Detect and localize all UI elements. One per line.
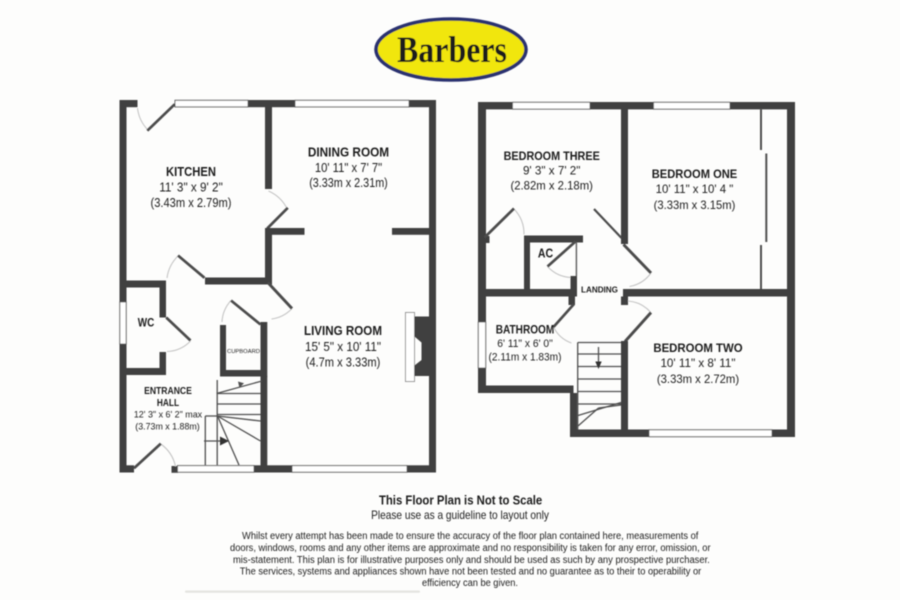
svg-text:doors, windows, rooms and any: doors, windows, rooms and any other item… <box>230 543 711 554</box>
svg-text:KITCHEN: KITCHEN <box>166 165 216 179</box>
svg-text:(3.33m x 3.15m): (3.33m x 3.15m) <box>654 198 736 212</box>
svg-text:(3.73m x 1.88m): (3.73m x 1.88m) <box>135 422 199 432</box>
svg-text:Please use as a guideline to l: Please use as a guideline to layout only <box>371 508 549 522</box>
svg-text:11' 3" x 9' 2": 11' 3" x 9' 2" <box>159 181 223 195</box>
svg-text:The services, systems and appl: The services, systems and appliances sho… <box>240 567 702 578</box>
svg-text:BEDROOM TWO: BEDROOM TWO <box>653 341 743 355</box>
svg-text:Barbers: Barbers <box>397 30 507 71</box>
svg-text:12' 3" x 6' 2" max: 12' 3" x 6' 2" max <box>134 410 203 420</box>
svg-text:DINING ROOM: DINING ROOM <box>308 146 389 160</box>
svg-text:ENTRANCE: ENTRANCE <box>144 386 192 397</box>
svg-text:Whilst every attempt has been: Whilst every attempt has been made to en… <box>242 531 699 542</box>
svg-text:(3.43m x 2.79m): (3.43m x 2.79m) <box>151 196 232 210</box>
svg-text:WC: WC <box>138 318 155 330</box>
svg-text:mis-statement. This plan is fo: mis-statement. This plan is for illustra… <box>233 555 710 566</box>
svg-text:10' 11" x 8' 11": 10' 11" x 8' 11" <box>660 356 735 370</box>
svg-text:(2.82m x 2.18m): (2.82m x 2.18m) <box>510 179 593 193</box>
svg-text:10' 11" x 7' 7": 10' 11" x 7' 7" <box>315 161 382 175</box>
svg-text:9' 3" x 7' 2": 9' 3" x 7' 2" <box>523 164 581 178</box>
svg-text:(2.11m x 1.83m): (2.11m x 1.83m) <box>489 352 562 364</box>
svg-text:BEDROOM ONE: BEDROOM ONE <box>652 167 738 181</box>
svg-text:(4.7m x 3.33m): (4.7m x 3.33m) <box>306 356 381 370</box>
svg-text:(3.33m x 2.31m): (3.33m x 2.31m) <box>309 176 388 190</box>
svg-text:6' 11" x 6' 0": 6' 11" x 6' 0" <box>497 338 553 350</box>
svg-text:LIVING ROOM: LIVING ROOM <box>304 324 382 338</box>
svg-text:15' 5" x 10' 11": 15' 5" x 10' 11" <box>305 340 381 354</box>
svg-text:This Floor Plan is Not to Scal: This Floor Plan is Not to Scale <box>379 493 542 508</box>
svg-text:HALL: HALL <box>157 398 179 409</box>
svg-text:BATHROOM: BATHROOM <box>496 324 555 337</box>
svg-text:efficiency can be given.: efficiency can be given. <box>422 578 518 589</box>
svg-text:AC: AC <box>538 246 553 260</box>
svg-text:BEDROOM THREE: BEDROOM THREE <box>504 149 600 163</box>
svg-text:LANDING: LANDING <box>581 286 618 295</box>
svg-text:10' 11" x 10' 4 ": 10' 11" x 10' 4 " <box>656 182 734 196</box>
svg-text:CUPBOARD: CUPBOARD <box>227 349 260 355</box>
svg-text:(3.33m x 2.72m): (3.33m x 2.72m) <box>657 372 739 386</box>
